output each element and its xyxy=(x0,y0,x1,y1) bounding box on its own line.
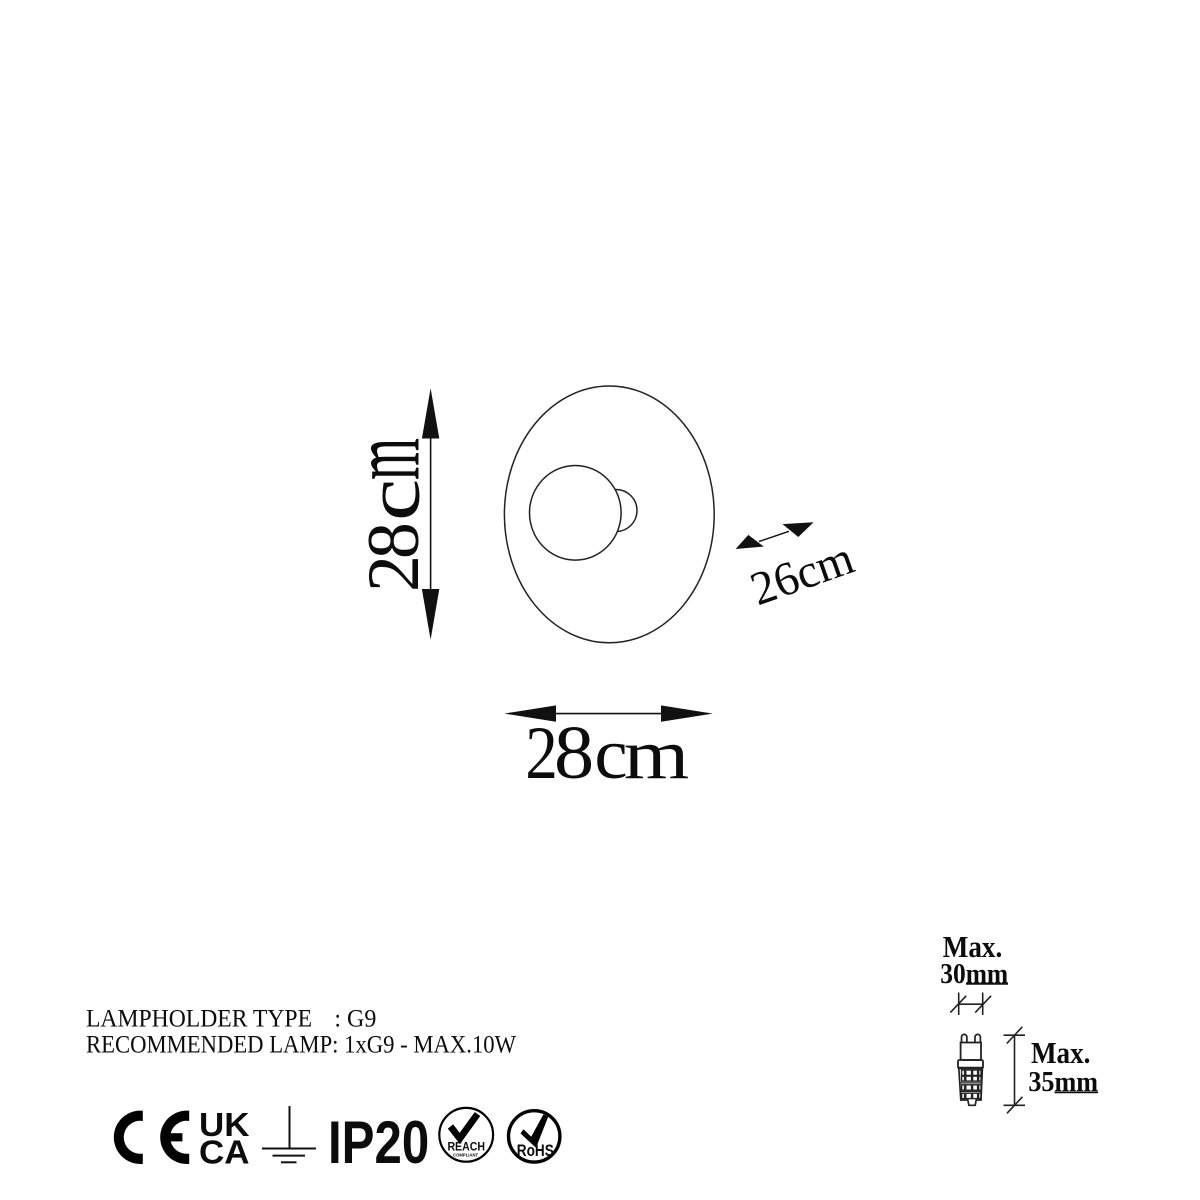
svg-text:c: c xyxy=(594,713,627,793)
svg-text:c: c xyxy=(350,479,435,521)
svg-text:8: 8 xyxy=(353,522,435,559)
svg-text:Max.: Max. xyxy=(1031,1035,1091,1070)
svg-text:REACH: REACH xyxy=(447,1141,485,1153)
svg-text:IP20: IP20 xyxy=(328,1109,429,1177)
svg-text:COMPLIANT: COMPLIANT xyxy=(453,1153,478,1159)
svg-text:LAMPHOLDER TYPE: LAMPHOLDER TYPE xyxy=(86,1004,312,1033)
svg-text:2: 2 xyxy=(353,555,435,592)
svg-text:m: m xyxy=(330,438,441,480)
svg-text:RoHS: RoHS xyxy=(517,1141,554,1160)
svg-text:8: 8 xyxy=(554,710,594,794)
svg-text:35mm: 35mm xyxy=(1028,1067,1098,1098)
svg-text:30mm: 30mm xyxy=(940,959,1008,990)
svg-text:: G9: : G9 xyxy=(334,1004,376,1033)
svg-text:RECOMMENDED LAMP: 1xG9 - MAX.1: RECOMMENDED LAMP: 1xG9 - MAX.10W xyxy=(86,1029,517,1058)
svg-text:CA: CA xyxy=(199,1134,250,1171)
svg-text:m: m xyxy=(624,715,689,793)
svg-text:2: 2 xyxy=(525,711,558,795)
